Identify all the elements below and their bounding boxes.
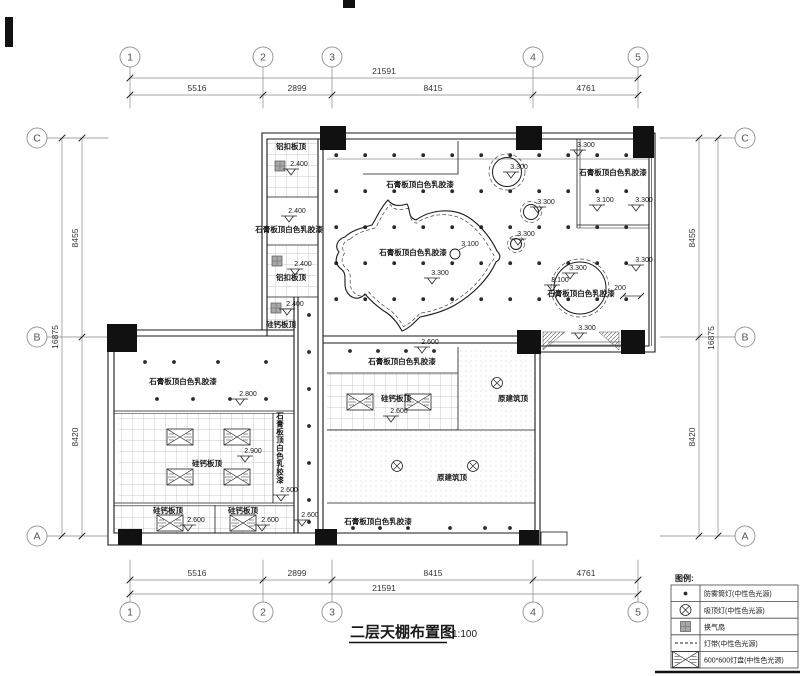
dim-gap-200: 200: [614, 285, 626, 292]
label-gypsum-ct: 石膏板顶白色乳胶漆: [367, 356, 436, 366]
label-original-2: 原建筑顶: [437, 472, 467, 482]
elev-3300-wall: 3.300: [635, 197, 653, 204]
elev-3300-c2: 3.300: [537, 199, 555, 206]
elev-3300-c3: 3.300: [517, 231, 535, 238]
legend-label-2: 吸顶灯(中性色光源): [704, 606, 765, 615]
elev-2600-ct: 2.600: [421, 339, 439, 346]
dim-total-left: 16875: [50, 325, 60, 349]
dim-bot-4: 4761: [577, 568, 596, 578]
drawing-title-block: 二层天棚布置图 1:100: [349, 623, 477, 643]
column: [118, 529, 142, 545]
elev-3300-fish: 3.300: [431, 270, 449, 277]
elev-2900: 2.900: [244, 448, 262, 455]
drawing-scale: 1:100: [452, 629, 477, 640]
grid-bubble-3b: 3: [329, 607, 335, 619]
elev-3300-wall2: 3.300: [635, 257, 653, 264]
elev-2800: 2.800: [239, 391, 257, 398]
legend-label-1: 防雾筒灯(中性色光源): [704, 589, 772, 598]
label-silicate-b2: 硅钙板顶: [228, 505, 258, 515]
label-silicate-small: 硅钙板顶: [266, 319, 296, 329]
dim-top-3: 8415: [424, 83, 443, 93]
column: [519, 530, 539, 545]
column: [621, 330, 645, 354]
elev-2400-4: 2.400: [286, 301, 304, 308]
grid-bubble-2: 2: [260, 52, 266, 64]
dimension-lines-right: [660, 138, 735, 536]
label-gypsum-subroom: 石膏板顶白色乳胶漆: [578, 167, 647, 177]
elev-3100-fish: 3.100: [461, 241, 479, 248]
hatch-corner: [543, 332, 565, 350]
elev-3300-circle: 3.300: [569, 265, 587, 272]
label-silicate-c: 硅钙板顶: [381, 393, 411, 403]
grid-bubble-1: 1: [127, 52, 133, 64]
elev-2600-corr: 2.600: [301, 512, 319, 519]
dim-right-1: 8455: [687, 228, 697, 247]
downlight-row-corridor: [307, 313, 311, 524]
dim-bot-3: 8415: [424, 568, 443, 578]
elev-3100-sub: 3.100: [596, 197, 614, 204]
label-gypsum-circle: 石膏板顶白色乳胶漆: [546, 288, 615, 298]
grid-bubble-Cr: C: [741, 133, 749, 145]
vent-fan-icon: [271, 303, 281, 313]
grid-bubble-5: 5: [635, 52, 641, 64]
ceiling-lamp-icon: [492, 378, 503, 389]
elev-3300-bwall: 3.300: [578, 325, 596, 332]
light-panel-icon: [673, 652, 699, 668]
elev-2400-2: 2.400: [288, 208, 306, 215]
legend-label-3: 换气扇: [704, 623, 725, 632]
grid-bubble-4: 4: [530, 52, 536, 64]
grid-bubbles-right: C B A: [735, 128, 755, 546]
vent-fan-icon: [681, 622, 691, 632]
dim-top-2: 2899: [288, 83, 307, 93]
wall-stub: [541, 532, 567, 545]
label-gypsum-vertical: 石膏板顶白色乳胶漆: [276, 412, 284, 496]
elev-2600-c: 2.600: [390, 408, 408, 415]
downlight-row-bottom-strip: [351, 526, 512, 530]
light-panel-icon: [167, 429, 193, 445]
legend-label-5: 600*600灯盘(中性色光源): [704, 656, 784, 665]
label-gypsum-fish: 石膏板顶白色乳胶漆: [378, 247, 447, 257]
hatch-corner: [599, 332, 619, 350]
label-gypsum-room: 石膏板顶白色乳胶漆: [254, 224, 323, 234]
dim-right-2: 8420: [687, 427, 697, 446]
dimension-lines-bottom: [130, 560, 638, 602]
ceiling-plan-drawing: 1 2 3 4 5 21591 5516 2899 8415 4761 1 2 …: [0, 0, 800, 676]
column: [517, 330, 541, 354]
label-aluminum-2: 铝扣板顶: [276, 272, 306, 282]
label-gypsum-hall-top: 石膏板顶白色乳胶漆: [385, 179, 454, 189]
grid-bubble-A: A: [33, 531, 40, 543]
elev-2400-3: 2.400: [294, 261, 312, 268]
grid-bubbles-top: 1 2 3 4 5: [120, 47, 648, 67]
plan-canvas: 1 2 3 4 5 21591 5516 2899 8415 4761 1 2 …: [0, 0, 800, 676]
grid-bubble-C: C: [33, 133, 41, 145]
vent-fan-icon: [272, 256, 282, 266]
grid-bubbles-bottom: 1 2 3 4 5: [120, 602, 648, 622]
vent-fan-icon: [275, 161, 285, 171]
legend-table: 图例: 防雾筒灯(中性色光源) 吸顶灯(中性色光源) 换气扇 灯带(中性色光源)…: [671, 573, 798, 668]
grid-bubble-B: B: [33, 332, 40, 344]
light-panel-icon: [224, 429, 250, 445]
label-gypsum-leftroom: 石膏板顶白色乳胶漆: [148, 376, 217, 386]
grid-bubble-2b: 2: [260, 607, 266, 619]
light-panel-icon: [157, 515, 183, 531]
label-gypsum-strip: 石膏板顶白色乳胶漆: [343, 516, 412, 526]
grid-bubble-3: 3: [329, 52, 335, 64]
elev-2600-b2: 2.600: [261, 517, 279, 524]
dim-top-1: 5516: [188, 83, 207, 93]
grid-bubble-5b: 5: [635, 607, 641, 619]
dim-top-4: 4761: [577, 83, 596, 93]
grid-bubble-1b: 1: [127, 607, 133, 619]
light-panel-icon: [230, 515, 256, 531]
drawing-title: 二层天棚布置图: [350, 623, 455, 641]
dim-left-1: 8455: [70, 228, 80, 247]
ceiling-lamp-icon: [680, 605, 691, 616]
dim-bot-2: 2899: [288, 568, 307, 578]
light-panel-icon: [347, 394, 373, 410]
ceiling-lamp-icon: [392, 461, 403, 472]
column: [107, 324, 137, 352]
elev-3300-c1: 3.300: [510, 164, 528, 171]
label-original-1: 原建筑顶: [498, 393, 528, 403]
ceiling-lamp-icon: [468, 461, 479, 472]
dim-bot-1: 5516: [188, 568, 207, 578]
label-aluminum-1: 铝扣板顶: [276, 141, 306, 151]
elev-2400-1: 2.400: [290, 161, 308, 168]
light-panel-icon: [224, 469, 250, 485]
downlight-icon: [684, 592, 688, 596]
elev-3300-sub: 3.300: [577, 142, 595, 149]
elev-2600-b1: 2.600: [187, 517, 205, 524]
label-silicate-mid: 硅钙板顶: [192, 458, 222, 468]
light-panel-icon: [167, 469, 193, 485]
dim-total-bottom: 21591: [372, 583, 396, 593]
dim-total-top: 21591: [372, 66, 396, 76]
legend-title: 图例:: [675, 573, 694, 583]
grid-bubble-Ar: A: [741, 531, 748, 543]
grid-bubble-4b: 4: [530, 607, 536, 619]
grid-bubbles-left: C B A: [27, 128, 47, 546]
elev-3100-hall: 3.100: [551, 277, 569, 284]
label-silicate-b1: 硅钙板顶: [153, 505, 183, 515]
legend-label-4: 灯带(中性色光源): [704, 639, 758, 648]
dim-total-right: 16875: [706, 326, 716, 350]
grid-bubble-Br: B: [741, 332, 748, 344]
column: [315, 529, 337, 545]
dim-left-2: 8420: [70, 427, 80, 446]
